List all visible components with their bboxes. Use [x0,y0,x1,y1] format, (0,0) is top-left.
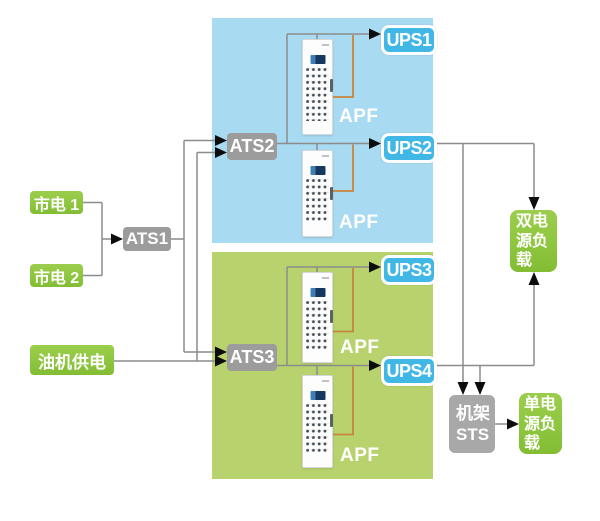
node-mains-2: 市电 2 [30,264,83,287]
cabinet-logo [322,277,329,279]
node-rack-sts: 机架STS [449,395,495,453]
cabinet-module-grid [306,404,329,454]
line-sts-to-single-load [495,419,519,430]
node-generator: 油机供电 [30,345,114,375]
cabinet-module-grid [306,301,329,349]
apf-cabinet-image [302,375,333,468]
cabinet-handle [330,187,333,200]
apf-cabinet-image [302,39,333,135]
cabinet-logo [322,380,329,382]
node-dual-power-load: 双电源负载 [510,210,557,272]
cabinet-logo [322,44,329,46]
node-ats1: ATS1 [123,227,171,251]
line-ups4-distribution [437,272,540,395]
cabinet-handle [330,310,333,323]
arrowhead-icon [475,382,486,395]
node-ups2: UPS2 [381,133,437,163]
node-ups4: UPS4 [381,356,437,386]
power-system-diagram: APF APF APF APF 市电 1 市电 2 油机供电 ATS1 ATS2… [0,0,600,521]
cabinet-display-screen [310,166,325,175]
cabinet-handle [330,79,333,92]
arrowhead-icon [458,382,469,395]
apf-label-2: APF [339,212,379,234]
node-ats2: ATS2 [227,133,277,160]
cabinet-module-grid [306,68,329,121]
apf-label-3: APF [340,337,380,359]
cabinet-display-screen [310,55,325,64]
cabinet-module-grid [306,179,329,223]
cabinet-handle [330,414,333,427]
cabinet-display-screen [310,391,325,400]
line-mains-to-ats1 [83,203,123,276]
apf-label-1: APF [339,106,379,128]
node-ups3: UPS3 [381,255,437,285]
apf-label-4: APF [340,445,380,467]
cabinet-display-screen [310,288,325,297]
node-single-power-load: 单电源负载 [519,393,562,454]
cabinet-logo [322,155,329,157]
apf-cabinet-image [302,272,333,363]
arrowhead-icon [529,197,540,210]
node-ats3: ATS3 [227,344,277,371]
arrowhead-icon [111,234,123,245]
apf-cabinet-image [302,150,333,237]
line-generator-bus [114,147,227,367]
node-mains-1: 市电 1 [30,191,83,214]
arrowhead-icon [529,272,540,285]
arrowhead-icon [507,419,519,430]
node-ups1: UPS1 [381,25,437,55]
